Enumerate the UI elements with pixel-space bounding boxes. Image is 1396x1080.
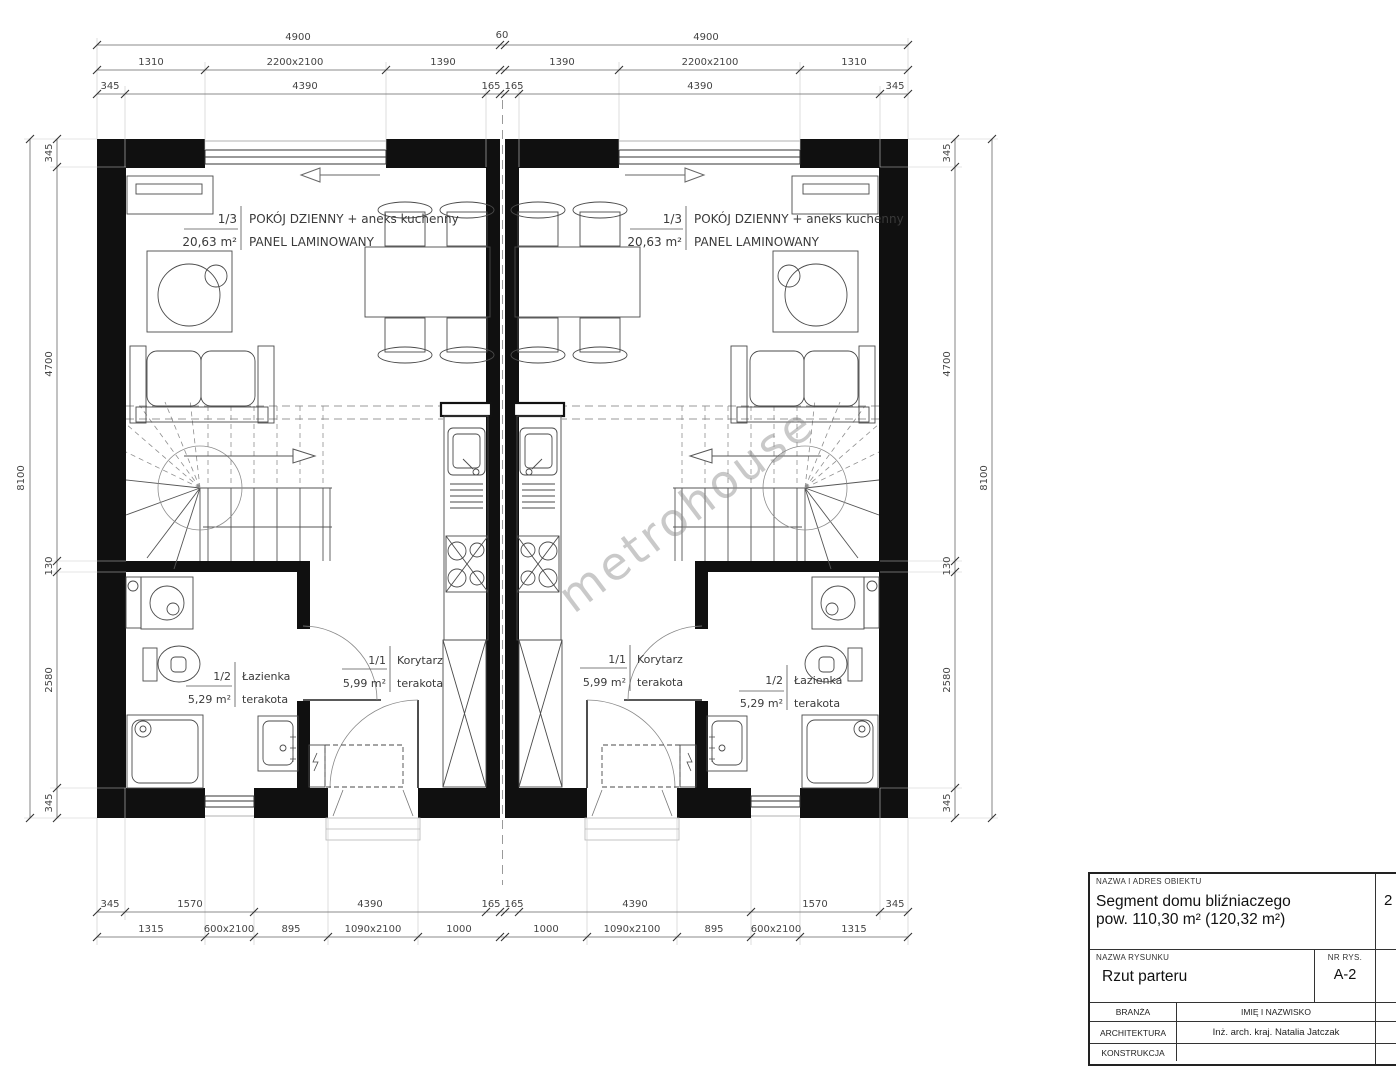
dim-label: 345 xyxy=(942,793,953,812)
room-area: 5,99 m² xyxy=(583,676,626,689)
title-block: NAZWA I ADRES OBIEKTU Segment domu bliźn… xyxy=(1088,872,1396,1066)
room-label-living-right: 1/3 20,63 m² POKÓJ DZIENNY + aneks kuche… xyxy=(627,206,903,250)
dim-label: 600x2100 xyxy=(204,924,254,935)
dim-label: 4900 xyxy=(693,32,718,43)
dim-label: 8100 xyxy=(979,465,990,490)
room-finish: terakota xyxy=(242,693,288,706)
dim-labels-top: 4900 60 4900 1310 2200x2100 1390 1390 22… xyxy=(100,30,904,92)
dim-label: 345 xyxy=(44,793,55,812)
watermark: metrohouse xyxy=(548,396,825,623)
branch-label: BRANŻA xyxy=(1090,1003,1177,1021)
dim-label: 4390 xyxy=(622,899,647,910)
dim-label: 4700 xyxy=(44,351,55,376)
room-finish: terakota xyxy=(397,677,443,690)
partial-right-text: 2 xyxy=(1376,874,1396,950)
room-number: 1/2 xyxy=(765,674,783,687)
drawing-cell: NAZWA RYSUNKU Rzut parteru xyxy=(1090,950,1315,1002)
dim-label: 4390 xyxy=(292,81,317,92)
dim-label: 4900 xyxy=(285,32,310,43)
room-finish: PANEL LAMINOWANY xyxy=(249,235,375,249)
room-label-hall-left: 1/1 5,99 m² Korytarz terakota xyxy=(342,646,443,692)
dim-label: 165 xyxy=(504,899,523,910)
dim-label: 2580 xyxy=(942,667,953,692)
room-area: 5,29 m² xyxy=(740,697,783,710)
dim-label: 4390 xyxy=(687,81,712,92)
room-number: 1/3 xyxy=(663,212,682,226)
dim-label: 4390 xyxy=(357,899,382,910)
dim-label: 165 xyxy=(481,81,500,92)
number-label: NR RYS. xyxy=(1319,953,1371,962)
dim-label: 345 xyxy=(885,81,904,92)
room-name: Korytarz xyxy=(637,653,683,666)
room-area: 5,29 m² xyxy=(188,693,231,706)
architect-name: Inż. arch. kraj. Natalia Jatczak xyxy=(1177,1022,1375,1043)
dim-label: 1390 xyxy=(549,57,574,68)
room-finish: terakota xyxy=(637,676,683,689)
person-label: IMIĘ I NAZWISKO xyxy=(1177,1003,1375,1021)
object-cell: NAZWA I ADRES OBIEKTU Segment domu bliźn… xyxy=(1090,874,1375,950)
dim-label: 2580 xyxy=(44,667,55,692)
dim-label: 1310 xyxy=(841,57,866,68)
dim-label: 165 xyxy=(504,81,523,92)
dim-label: 1000 xyxy=(533,924,558,935)
title-block-right-column: 2 xyxy=(1375,874,1396,1064)
room-name: POKÓJ DZIENNY + aneks kuchenny xyxy=(249,211,459,226)
dim-label: 130 xyxy=(942,556,953,575)
dim-label: 1310 xyxy=(138,57,163,68)
dim-label: 1315 xyxy=(138,924,163,935)
architecture-row: ARCHITEKTURA Inż. arch. kraj. Natalia Ja… xyxy=(1090,1022,1375,1044)
dim-label: 895 xyxy=(281,924,300,935)
object-name: Segment domu bliźniaczego xyxy=(1096,893,1369,911)
architecture-label: ARCHITEKTURA xyxy=(1090,1022,1177,1043)
number-cell: NR RYS. A-2 xyxy=(1315,950,1375,1002)
construction-name-empty xyxy=(1177,1044,1375,1061)
title-block-main: NAZWA I ADRES OBIEKTU Segment domu bliźn… xyxy=(1090,874,1375,1064)
dim-label: 8100 xyxy=(16,465,27,490)
room-area: 20,63 m² xyxy=(627,235,682,249)
construction-label: KONSTRUKCJA xyxy=(1090,1044,1177,1061)
dim-label: 345 xyxy=(100,899,119,910)
dim-label: 345 xyxy=(100,81,119,92)
dim-label: 4700 xyxy=(942,351,953,376)
dim-label: 1090x2100 xyxy=(345,924,402,935)
dim-label: 1315 xyxy=(841,924,866,935)
object-label: NAZWA I ADRES OBIEKTU xyxy=(1096,877,1369,886)
room-name: Korytarz xyxy=(397,654,443,667)
dim-label: 165 xyxy=(481,899,500,910)
room-area: 5,99 m² xyxy=(343,677,386,690)
dim-label: 60 xyxy=(496,30,509,41)
dim-label: 1090x2100 xyxy=(604,924,661,935)
dim-label: 130 xyxy=(44,556,55,575)
dim-labels-bottom: 345 1570 4390 165 165 4390 1570 345 1315… xyxy=(100,899,904,935)
dim-label: 1570 xyxy=(802,899,827,910)
dim-label: 2200x2100 xyxy=(682,57,739,68)
room-number: 1/1 xyxy=(608,653,626,666)
room-area: 20,63 m² xyxy=(182,235,237,249)
dim-label: 345 xyxy=(942,143,953,162)
dim-label: 600x2100 xyxy=(751,924,801,935)
room-label-living-left: 1/3 20,63 m² POKÓJ DZIENNY + aneks kuche… xyxy=(182,206,458,250)
branch-header-row: BRANŻA IMIĘ I NAZWISKO xyxy=(1090,1003,1375,1022)
room-name: Łazienka xyxy=(793,674,842,687)
drawing-label: NAZWA RYSUNKU xyxy=(1096,953,1308,962)
dim-label: 345 xyxy=(885,899,904,910)
drawing-number: A-2 xyxy=(1319,967,1371,983)
dim-label: 1390 xyxy=(430,57,455,68)
room-finish: PANEL LAMINOWANY xyxy=(694,235,820,249)
room-finish: terakota xyxy=(794,697,840,710)
dim-label: 895 xyxy=(704,924,723,935)
room-label-bath-left: 1/2 5,29 m² Łazienka terakota xyxy=(186,662,290,707)
room-label-hall-right: 1/1 5,99 m² Korytarz terakota xyxy=(580,645,683,691)
dim-label: 345 xyxy=(44,143,55,162)
construction-row: KONSTRUKCJA xyxy=(1090,1044,1375,1061)
drawing-name: Rzut parteru xyxy=(1096,968,1308,986)
dim-label: 1570 xyxy=(177,899,202,910)
room-number: 1/3 xyxy=(218,212,237,226)
dim-label: 2200x2100 xyxy=(267,57,324,68)
drawing-row: NAZWA RYSUNKU Rzut parteru NR RYS. A-2 xyxy=(1090,950,1375,1003)
room-name: POKÓJ DZIENNY + aneks kuchenny xyxy=(694,211,904,226)
object-area: pow. 110,30 m² (120,32 m²) xyxy=(1096,911,1369,929)
room-number: 1/1 xyxy=(368,654,386,667)
room-number: 1/2 xyxy=(213,670,231,683)
room-name: Łazienka xyxy=(241,670,290,683)
dim-label: 1000 xyxy=(446,924,471,935)
